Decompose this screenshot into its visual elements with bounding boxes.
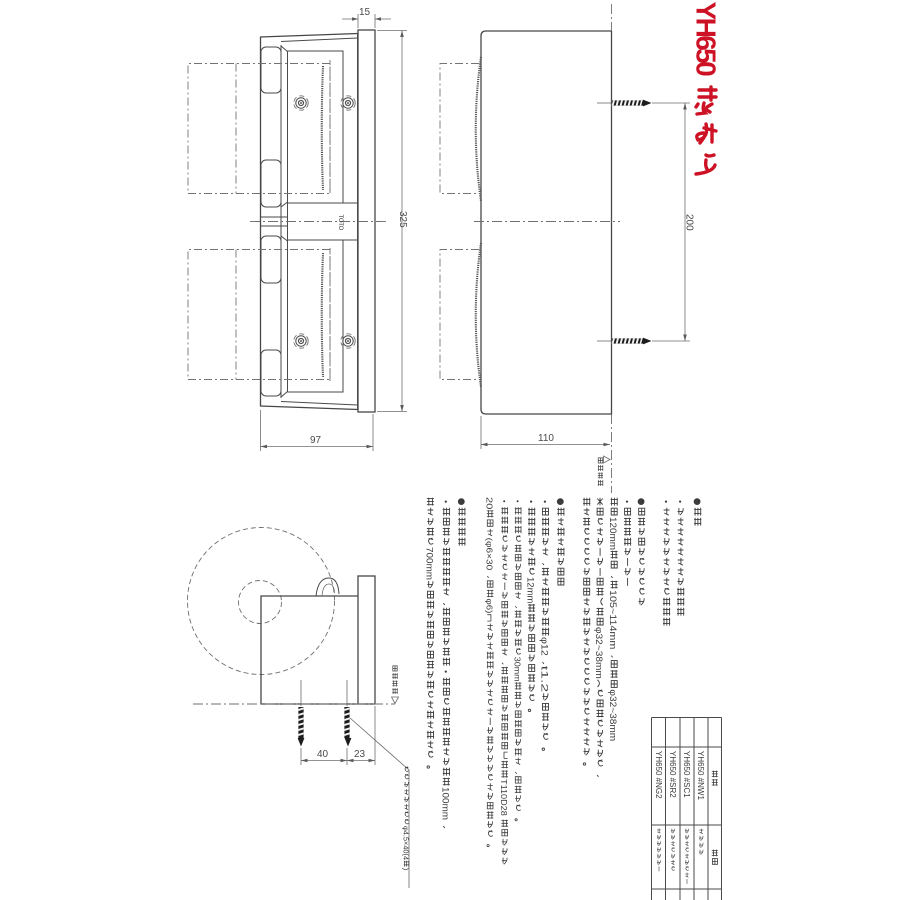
- svg-text:φ12: φ12: [540, 637, 550, 656]
- svg-text:(φ6×30: (φ6×30: [484, 538, 494, 571]
- svg-text:φ32~38mm: φ32~38mm: [594, 627, 604, 679]
- svg-text:t1.2: t1.2: [540, 666, 550, 692]
- svg-text:120mm: 120mm: [608, 517, 618, 550]
- svg-text:100mm: 100mm: [440, 787, 450, 820]
- svg-text:700mm: 700mm: [425, 547, 435, 580]
- svg-text:φ32~38mm: φ32~38mm: [608, 689, 618, 741]
- svg-text:φ6): φ6): [484, 599, 494, 614]
- svg-text:105~114mm: 105~114mm: [608, 590, 618, 650]
- svg-text:15: 15: [359, 7, 371, 18]
- svg-text:12mm: 12mm: [526, 577, 536, 604]
- svg-text:T110D28: T110D28: [499, 779, 509, 816]
- svg-text:110: 110: [538, 433, 554, 444]
- svg-text:20: 20: [484, 497, 494, 510]
- svg-text:97: 97: [310, 435, 322, 446]
- svg-text:YH650 #SC1: YH650 #SC1: [682, 751, 691, 798]
- svg-text:TOTO: TOTO: [337, 215, 343, 231]
- svg-text:YH650 #SR2: YH650 #SR2: [668, 751, 677, 798]
- svg-text:325: 325: [397, 211, 408, 228]
- svg-text:YH650 #NW1: YH650 #NW1: [696, 751, 705, 800]
- svg-text:φ4.5×40(4: φ4.5×40(4: [402, 826, 409, 860]
- svg-text:YH650: YH650: [691, 2, 722, 77]
- svg-text:30mm: 30mm: [512, 657, 522, 682]
- svg-text:40: 40: [317, 749, 329, 760]
- svg-text:YH650 #NG2: YH650 #NG2: [654, 751, 663, 799]
- svg-text:): ): [402, 868, 409, 871]
- svg-text:200: 200: [684, 214, 695, 231]
- svg-text:23: 23: [354, 749, 366, 760]
